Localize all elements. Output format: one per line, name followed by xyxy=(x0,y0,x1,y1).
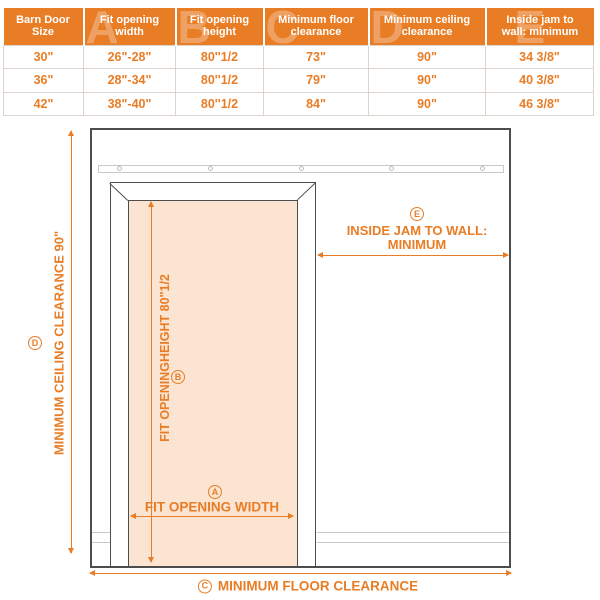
label-inside-jam-to-wall: INSIDE JAM TO WALL: MINIMUM xyxy=(347,224,488,252)
dimension-arrow-jam-to-wall xyxy=(318,255,508,256)
track-hole xyxy=(480,166,485,171)
baseboard-line xyxy=(92,532,110,533)
dimension-arrow-floor-clearance xyxy=(90,573,511,574)
dimension-arrow-opening-width xyxy=(131,516,293,517)
label-min-floor-clearance: MINIMUM FLOOR CLEARANCE xyxy=(218,579,418,594)
label-line: INSIDE JAM TO WALL: xyxy=(347,224,488,238)
dim-letter-c: C xyxy=(198,579,212,593)
dim-letter-d: D xyxy=(28,336,42,350)
dim-letter-b: B xyxy=(171,370,185,384)
track-hole xyxy=(389,166,394,171)
track-hole xyxy=(117,166,122,171)
installation-diagram: D MINIMUM CEILING CLEARANCE 90" FIT OPEN… xyxy=(0,0,600,600)
baseboard-line xyxy=(317,542,509,543)
label-min-ceiling-clearance: MINIMUM CEILING CLEARANCE 90" xyxy=(52,231,67,455)
dimension-arrow-ceiling-clearance xyxy=(71,131,72,553)
label-fit-opening-width: FIT OPENING WIDTH xyxy=(145,500,279,515)
dim-letter-a: A xyxy=(208,485,222,499)
label-fit-opening-height: FIT OPENINGHEIGHT 80''1/2 xyxy=(158,274,172,442)
label-min-floor-clearance-group: C MINIMUM FLOOR CLEARANCE xyxy=(198,579,418,594)
baseboard-line xyxy=(92,542,110,543)
barn-door-track xyxy=(98,165,504,173)
dim-letter-e: E xyxy=(410,207,424,221)
track-hole xyxy=(299,166,304,171)
label-line: MINIMUM xyxy=(347,238,488,252)
track-hole xyxy=(208,166,213,171)
barn-door-spec-sheet: Barn Door Size A Fit opening width B Fit… xyxy=(0,0,600,600)
baseboard-line xyxy=(317,532,509,533)
